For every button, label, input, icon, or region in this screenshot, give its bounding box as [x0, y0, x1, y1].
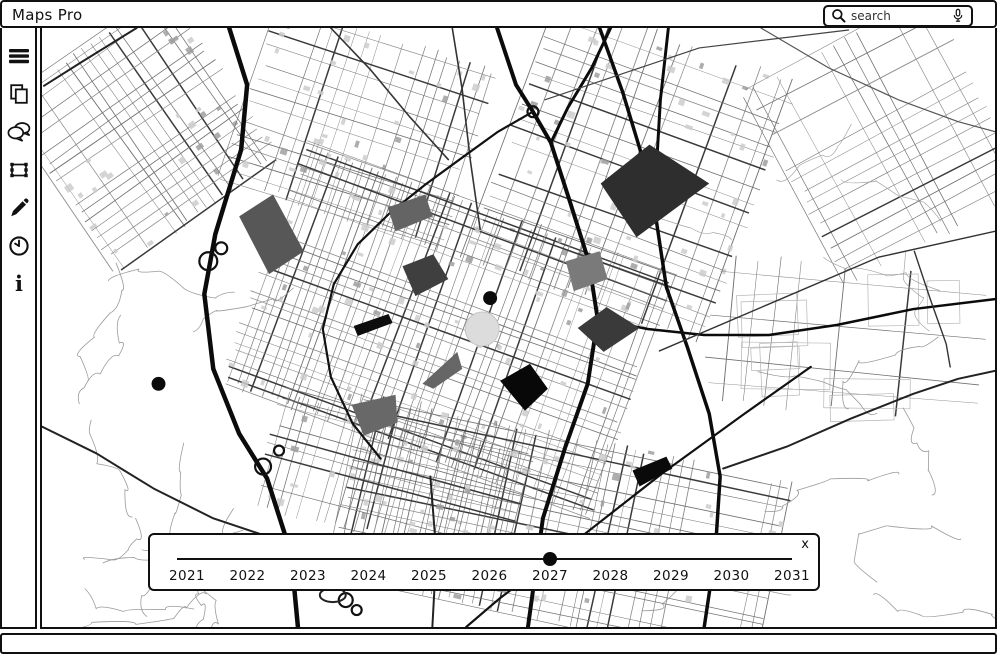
info-icon: i	[7, 272, 31, 296]
map-marker-dot[interactable]	[483, 291, 497, 305]
timeline-year-label: 2023	[290, 568, 326, 584]
clock-icon	[7, 234, 31, 258]
timeline-year-label: 2027	[532, 568, 568, 584]
timeline-year-label: 2028	[593, 568, 629, 584]
timeline-panel: 2021202220232024202520262027202820292030…	[148, 533, 820, 591]
sidebar-item-menu[interactable]	[5, 42, 33, 70]
timeline-year-label: 2026	[472, 568, 508, 584]
timeline-year-label: 2022	[230, 568, 266, 584]
search-box[interactable]	[823, 5, 973, 27]
app-title: Maps Pro	[12, 6, 82, 24]
sidebar-item-layers[interactable]	[5, 80, 33, 108]
sidebar-item-draw[interactable]	[5, 194, 33, 222]
timeline-year-label: 2025	[411, 568, 447, 584]
timeline-year-label: 2031	[774, 568, 810, 584]
timeline-year-label: 2029	[653, 568, 689, 584]
timeline-close-button[interactable]: x	[801, 538, 809, 551]
pencil-icon	[7, 196, 31, 220]
map-overlay-polygon[interactable]	[566, 251, 608, 291]
microphone-icon[interactable]	[949, 6, 967, 26]
transform-icon	[7, 158, 31, 182]
map-overlay-polygon[interactable]	[239, 194, 304, 274]
sidebar-item-history[interactable]	[5, 232, 33, 260]
timeline-slider-track[interactable]	[177, 558, 792, 560]
hamburger-icon	[7, 44, 31, 68]
map-marker-dot[interactable]	[152, 377, 166, 391]
svg-text:i: i	[15, 272, 23, 296]
pages-icon	[7, 82, 31, 106]
magnifier-icon	[829, 6, 849, 26]
map-overlay-polygon[interactable]	[578, 307, 640, 352]
status-bar	[0, 633, 997, 654]
timeline-slider-handle[interactable]	[543, 552, 557, 566]
timeline-year-label: 2030	[714, 568, 750, 584]
top-bar: Maps Pro	[0, 0, 997, 28]
sidebar-item-info[interactable]: i	[5, 270, 33, 298]
map-overlay-polygon[interactable]	[601, 145, 710, 238]
app-window: Maps Pro	[0, 0, 1000, 656]
sidebar-item-select[interactable]	[5, 156, 33, 184]
sidebar-item-comments[interactable]	[5, 118, 33, 146]
search-input[interactable]	[849, 9, 949, 23]
left-toolbar: i	[0, 28, 37, 629]
timeline-year-label: 2024	[351, 568, 387, 584]
timeline-year-label: 2021	[169, 568, 205, 584]
chat-icon	[7, 120, 31, 144]
map-highlight-circle	[465, 312, 499, 346]
